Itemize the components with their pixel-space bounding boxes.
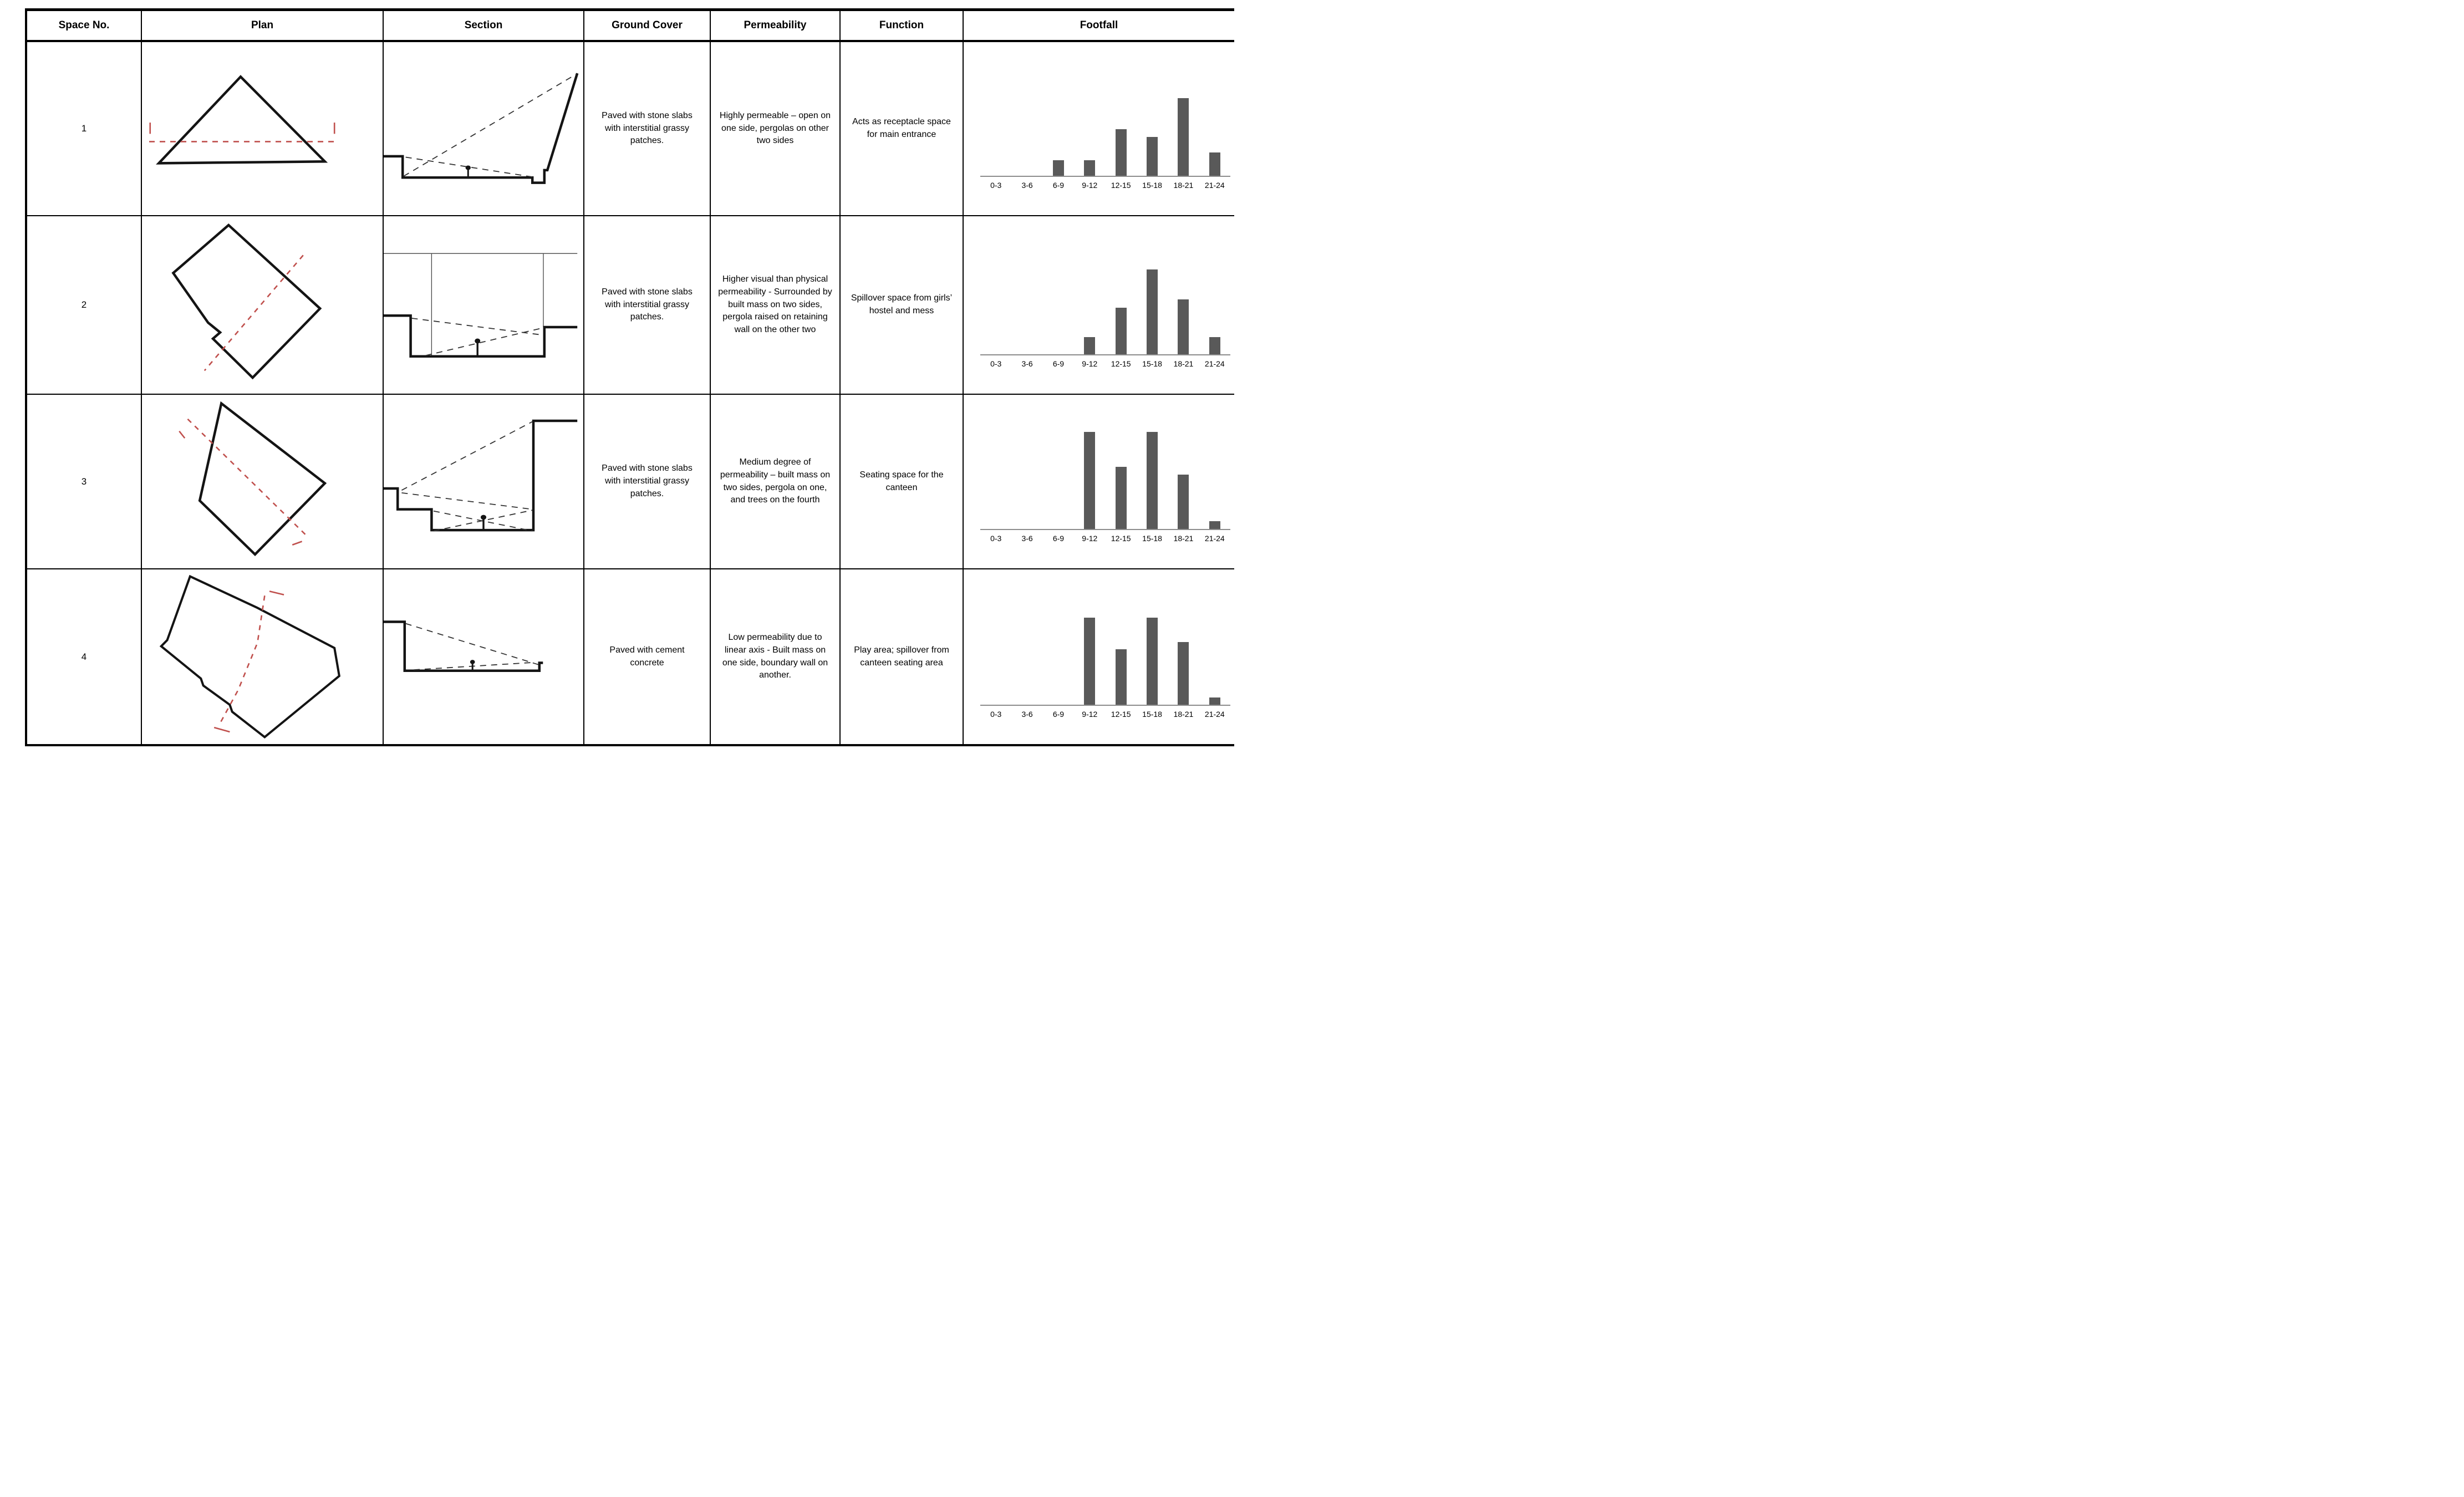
- footfall-bar-slot: [1074, 160, 1105, 176]
- plan-1-triangle-outline: [159, 77, 324, 163]
- plan-cell-1: [142, 42, 384, 216]
- function-4: Play area; spillover from canteen seatin…: [841, 569, 964, 744]
- x-tick-label: 18-21: [1168, 530, 1199, 543]
- header-ground-cover: Ground Cover: [584, 11, 711, 42]
- footfall-bar-slot: [1074, 432, 1105, 529]
- plan-2-drawing: [142, 216, 383, 394]
- footfall-bar: [1116, 308, 1127, 354]
- x-tick-label: 9-12: [1074, 706, 1105, 719]
- footfall-bar: [1084, 337, 1095, 354]
- footfall-bar-slot: [1106, 308, 1137, 354]
- plan-3-outline: [200, 404, 325, 554]
- x-tick-label: 15-18: [1137, 706, 1168, 719]
- header-footfall: Footfall: [964, 11, 1234, 42]
- footfall-x-axis-labels: 0-33-66-99-1212-1515-1818-2121-24: [980, 355, 1230, 368]
- x-tick-label: 12-15: [1106, 530, 1137, 543]
- x-tick-label: 6-9: [1043, 355, 1074, 368]
- footfall-bar: [1116, 467, 1127, 529]
- space-no-2: 2: [27, 216, 142, 395]
- footfall-bar-slot: [1074, 618, 1105, 705]
- space-no-3: 3: [27, 395, 142, 569]
- footfall-plot: [980, 98, 1230, 177]
- footfall-bar: [1116, 649, 1127, 705]
- section-2-sightline-2: [426, 328, 543, 356]
- header-function: Function: [841, 11, 964, 42]
- plan-4-outline: [161, 577, 339, 737]
- footfall-chart-2: 0-33-66-99-1212-1515-1818-2121-24: [964, 216, 1234, 395]
- plan-4-cut-tick-top: [269, 591, 284, 594]
- x-tick-label: 18-21: [1168, 177, 1199, 190]
- section-4-drawing: [384, 569, 583, 744]
- footfall-bar: [1084, 432, 1095, 529]
- ground-cover-3: Paved with stone slabs with interstitial…: [584, 395, 711, 569]
- x-tick-label: 9-12: [1074, 355, 1105, 368]
- section-3-drawing: [384, 395, 583, 568]
- footfall-bar: [1053, 160, 1064, 176]
- human-figure: [481, 515, 486, 531]
- footfall-bar-slot: [1137, 432, 1168, 529]
- human-figure: [470, 660, 475, 671]
- footfall-bar: [1209, 152, 1220, 176]
- plan-2-outline: [173, 225, 320, 378]
- x-tick-label: 15-18: [1137, 355, 1168, 368]
- footfall-bar: [1116, 129, 1127, 176]
- plan-1-drawing: [142, 42, 383, 215]
- spaces-analysis-table: Space No. Plan Section Ground Cover Perm…: [25, 8, 1234, 746]
- permeability-3: Medium degree of permeability – built ma…: [711, 395, 841, 569]
- section-3-sightline-2: [401, 493, 532, 510]
- section-cell-4: [384, 569, 584, 744]
- plan-cell-4: [142, 569, 384, 744]
- x-tick-label: 0-3: [980, 530, 1011, 543]
- x-tick-label: 15-18: [1137, 177, 1168, 190]
- plan-3-cut-tick-top: [179, 431, 185, 439]
- x-tick-label: 3-6: [1011, 530, 1042, 543]
- space-no-1: 1: [27, 42, 142, 216]
- footfall-bar-slot: [1106, 649, 1137, 705]
- footfall-x-axis-labels: 0-33-66-99-1212-1515-1818-2121-24: [980, 177, 1230, 190]
- human-figure: [466, 165, 471, 177]
- section-1-ground-profile: [384, 73, 577, 182]
- plan-2-section-cut-line: [205, 255, 303, 370]
- section-3-ground-profile: [384, 421, 577, 530]
- x-tick-label: 18-21: [1168, 355, 1199, 368]
- x-tick-label: 0-3: [980, 177, 1011, 190]
- footfall-plot: [980, 432, 1230, 530]
- footfall-bar-slot: [1168, 642, 1199, 705]
- section-cell-1: [384, 42, 584, 216]
- footfall-bar-slot: [1199, 152, 1230, 176]
- footfall-bar-slot: [1199, 521, 1230, 529]
- document-page: { "colors": { "diagram_line": "#141414",…: [0, 0, 1232, 748]
- footfall-bar-slot: [1106, 129, 1137, 176]
- section-2-ground-profile: [384, 315, 577, 357]
- x-tick-label: 12-15: [1106, 355, 1137, 368]
- footfall-bar-slot: [1106, 467, 1137, 529]
- footfall-bar: [1178, 642, 1189, 705]
- plan-3-cut-tick-bottom: [292, 541, 302, 544]
- x-tick-label: 0-3: [980, 355, 1011, 368]
- footfall-bar-slot: [1137, 269, 1168, 354]
- ground-cover-2: Paved with stone slabs with interstitial…: [584, 216, 711, 395]
- x-tick-label: 9-12: [1074, 530, 1105, 543]
- footfall-bar: [1147, 618, 1158, 705]
- x-tick-label: 9-12: [1074, 177, 1105, 190]
- plan-cell-3: [142, 395, 384, 569]
- x-tick-label: 21-24: [1199, 355, 1230, 368]
- plan-3-drawing: [142, 395, 383, 568]
- footfall-bar: [1209, 521, 1220, 529]
- section-3-sightline-1: [401, 422, 532, 491]
- x-tick-label: 0-3: [980, 706, 1011, 719]
- footfall-bar-slot: [1199, 337, 1230, 354]
- footfall-bar: [1178, 475, 1189, 529]
- space-no-4: 4: [27, 569, 142, 744]
- footfall-bar: [1178, 299, 1189, 354]
- x-tick-label: 15-18: [1137, 530, 1168, 543]
- footfall-bar-slot: [1168, 98, 1199, 176]
- footfall-plot: [980, 269, 1230, 355]
- footfall-bar: [1209, 337, 1220, 354]
- section-cell-3: [384, 395, 584, 569]
- human-figure: [475, 338, 480, 355]
- x-tick-label: 12-15: [1106, 177, 1137, 190]
- plan-cell-2: [142, 216, 384, 395]
- footfall-chart-3: 0-33-66-99-1212-1515-1818-2121-24: [964, 395, 1234, 569]
- function-1: Acts as receptacle space for main entran…: [841, 42, 964, 216]
- footfall-bar: [1147, 269, 1158, 354]
- footfall-bar: [1084, 618, 1095, 705]
- section-1-drawing: [384, 42, 583, 215]
- permeability-4: Low permeability due to linear axis - Bu…: [711, 569, 841, 744]
- x-tick-label: 3-6: [1011, 706, 1042, 719]
- footfall-x-axis-labels: 0-33-66-99-1212-1515-1818-2121-24: [980, 706, 1230, 719]
- plan-4-drawing: [142, 569, 383, 744]
- footfall-bar: [1147, 137, 1158, 176]
- footfall-bar-slot: [1199, 697, 1230, 705]
- footfall-bar-slot: [1074, 337, 1105, 354]
- header-permeability: Permeability: [711, 11, 841, 42]
- permeability-2: Higher visual than physical permeability…: [711, 216, 841, 395]
- x-tick-label: 3-6: [1011, 177, 1042, 190]
- function-2: Spillover space from girls’ hostel and m…: [841, 216, 964, 395]
- footfall-plot: [980, 618, 1230, 706]
- x-tick-label: 6-9: [1043, 177, 1074, 190]
- footfall-bar-slot: [1137, 618, 1168, 705]
- header-plan: Plan: [142, 11, 384, 42]
- x-tick-label: 6-9: [1043, 530, 1074, 543]
- header-section: Section: [384, 11, 584, 42]
- footfall-bar: [1178, 98, 1189, 176]
- x-tick-label: 21-24: [1199, 530, 1230, 543]
- footfall-chart-1: 0-33-66-99-1212-1515-1818-2121-24: [964, 42, 1234, 216]
- x-tick-label: 12-15: [1106, 706, 1137, 719]
- footfall-bar: [1147, 432, 1158, 529]
- permeability-1: Highly permeable – open on one side, per…: [711, 42, 841, 216]
- plan-4-cut-tick-bottom: [214, 727, 230, 732]
- x-tick-label: 21-24: [1199, 706, 1230, 719]
- footfall-bar-slot: [1043, 160, 1074, 176]
- footfall-x-axis-labels: 0-33-66-99-1212-1515-1818-2121-24: [980, 530, 1230, 543]
- section-4-sightline-2: [414, 663, 536, 670]
- footfall-bar-slot: [1168, 299, 1199, 354]
- header-space-no: Space No.: [27, 11, 142, 42]
- footfall-chart-4: 0-33-66-99-1212-1515-1818-2121-24: [964, 569, 1234, 744]
- footfall-bar-slot: [1137, 137, 1168, 176]
- footfall-bar: [1084, 160, 1095, 176]
- x-tick-label: 18-21: [1168, 706, 1199, 719]
- ground-cover-4: Paved with cement concrete: [584, 569, 711, 744]
- footfall-bar: [1209, 697, 1220, 705]
- function-3: Seating space for the canteen: [841, 395, 964, 569]
- footfall-bar-slot: [1168, 475, 1199, 529]
- ground-cover-1: Paved with stone slabs with interstitial…: [584, 42, 711, 216]
- section-cell-2: [384, 216, 584, 395]
- section-4-sightline-1: [406, 624, 538, 665]
- section-2-drawing: [384, 216, 583, 394]
- x-tick-label: 21-24: [1199, 177, 1230, 190]
- x-tick-label: 3-6: [1011, 355, 1042, 368]
- x-tick-label: 6-9: [1043, 706, 1074, 719]
